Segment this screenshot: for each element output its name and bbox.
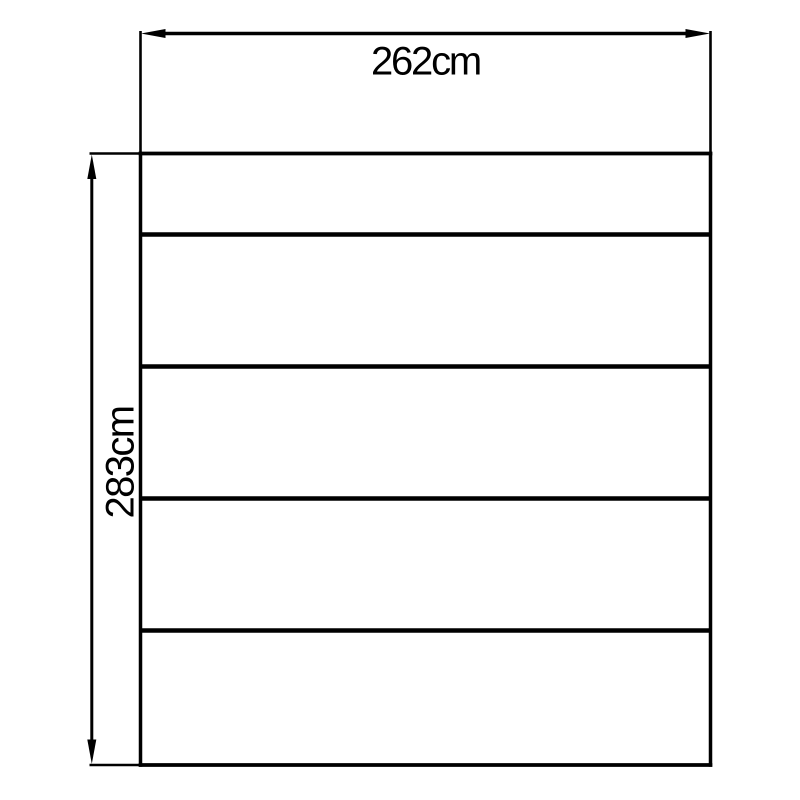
svg-text:262cm: 262cm: [371, 40, 480, 84]
svg-text:283cm: 283cm: [99, 406, 143, 518]
